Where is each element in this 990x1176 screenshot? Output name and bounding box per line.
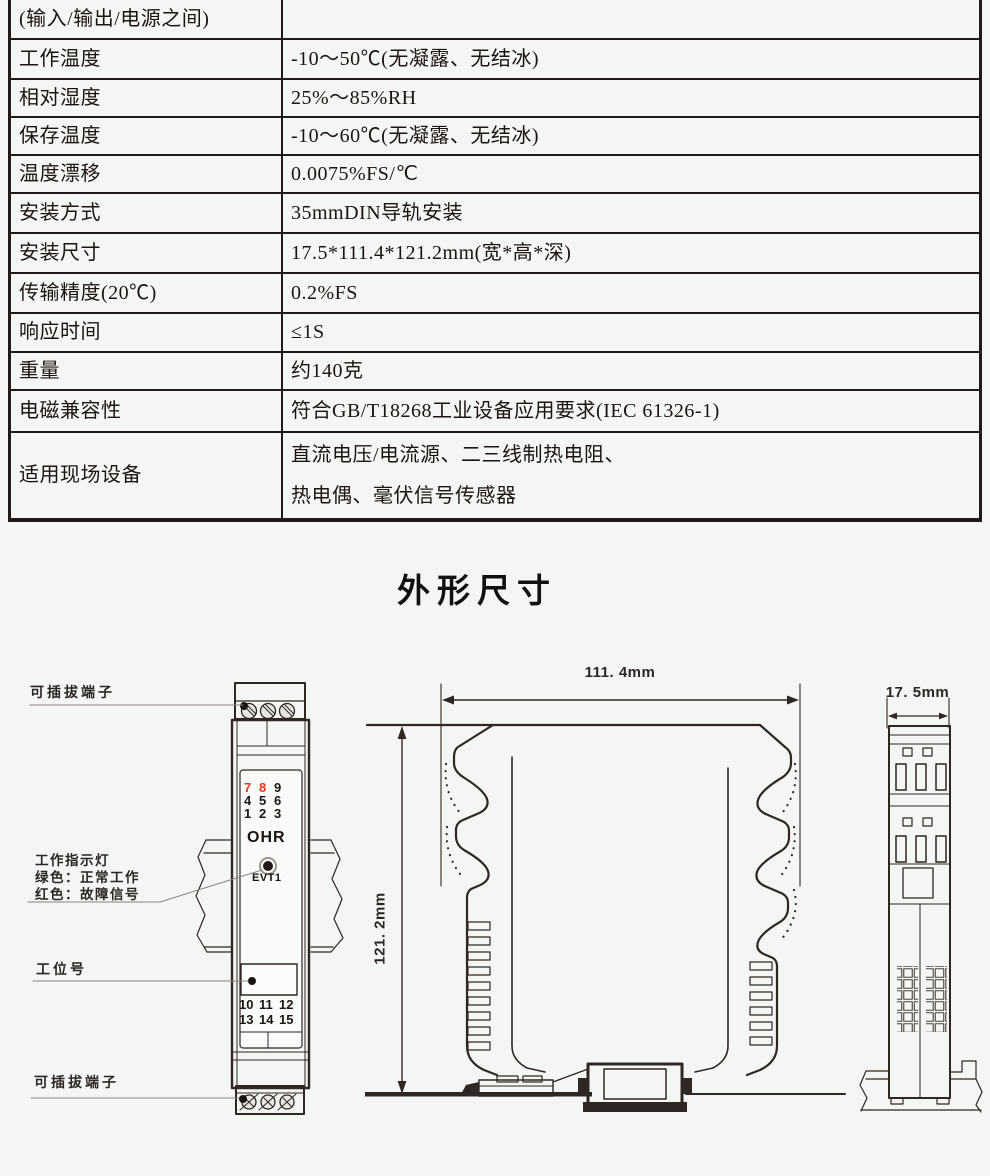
indicator-line-2: 绿色：正常工作 — [35, 869, 140, 886]
terminal-number: 1 — [244, 807, 259, 820]
table-row: 重量 约140克 — [10, 352, 981, 390]
brand-logo: OHR — [247, 829, 286, 847]
terminal-marker-dot-top — [240, 702, 248, 710]
spec-value: ≤1S — [282, 313, 981, 352]
spec-label: 安装尺寸 — [10, 233, 283, 273]
spec-label: (输入/输出/电源之间) — [10, 0, 283, 39]
spec-value: -10～60℃(无凝露、无结冰) — [282, 117, 981, 155]
terminal-number: 15 — [279, 1013, 299, 1028]
dim-width — [441, 684, 800, 886]
terminal-number: 13 — [239, 1013, 259, 1028]
dimension-depth-label: 17. 5mm — [860, 684, 975, 701]
terminal-marker-dot-bottom — [239, 1095, 247, 1103]
indicator-line-1: 工作指示灯 — [35, 852, 140, 869]
table-row: 保存温度 -10～60℃(无凝露、无结冰) — [10, 117, 981, 155]
spec-label: 相对湿度 — [10, 79, 283, 117]
terminal-number: 14 — [259, 1013, 279, 1028]
spec-label: 工作温度 — [10, 39, 283, 79]
spec-label: 重量 — [10, 352, 283, 390]
spec-label: 响应时间 — [10, 313, 283, 352]
indicator-line-3: 红色：故障信号 — [35, 886, 140, 903]
spec-value: -10～50℃(无凝露、无结冰) — [282, 39, 981, 79]
spec-label: 适用现场设备 — [10, 432, 283, 520]
table-row: (输入/输出/电源之间) — [10, 0, 981, 39]
terminal-number: 11 — [259, 998, 279, 1013]
terminal-number-grid-top: 7 8 9 4 5 6 1 2 3 — [244, 781, 289, 820]
table-row: 适用现场设备 直流电压/电流源、二三线制热电阻、 热电偶、毫伏信号传感器 — [10, 432, 981, 520]
table-row: 相对湿度 25%～85%RH — [10, 79, 981, 117]
spec-value: 0.2%FS — [282, 273, 981, 313]
spec-label: 安装方式 — [10, 193, 283, 233]
label-station-number: 工位号 — [36, 959, 87, 979]
spec-label: 保存温度 — [10, 117, 283, 155]
spec-value: 0.0075%FS/℃ — [282, 155, 981, 193]
terminal-number: 3 — [274, 807, 289, 820]
dim-height — [398, 726, 407, 1094]
spec-label: 电磁兼容性 — [10, 390, 283, 432]
table-row: 电磁兼容性 符合GB/T18268工业设备应用要求(IEC 61326-1) — [10, 390, 981, 432]
terminal-number-grid-bottom: 10 11 12 13 14 15 — [239, 998, 299, 1027]
table-row: 安装尺寸 17.5*111.4*121.2mm(宽*高*深) — [10, 233, 981, 273]
spec-value: 直流电压/电流源、二三线制热电阻、 热电偶、毫伏信号传感器 — [282, 432, 981, 520]
table-row: 传输精度(20℃) 0.2%FS — [10, 273, 981, 313]
side-view-group — [365, 684, 845, 1112]
label-work-indicator: 工作指示灯 绿色：正常工作 红色：故障信号 — [35, 852, 140, 903]
terminal-number: 10 — [239, 998, 259, 1013]
spec-value: 符合GB/T18268工业设备应用要求(IEC 61326-1) — [282, 390, 981, 432]
spec-value — [282, 0, 981, 39]
spec-value: 约140克 — [282, 352, 981, 390]
station-marker-dot — [248, 977, 256, 985]
table-row: 温度漂移 0.0075%FS/℃ — [10, 155, 981, 193]
spec-table: (输入/输出/电源之间) 工作温度 -10～50℃(无凝露、无结冰) 相对湿度 … — [8, 0, 982, 522]
spec-value: 17.5*111.4*121.2mm(宽*高*深) — [282, 233, 981, 273]
table-row: 安装方式 35mmDIN导轨安装 — [10, 193, 981, 233]
dimension-width-label: 111. 4mm — [545, 664, 695, 681]
label-pluggable-terminal-top: 可插拔端子 — [30, 682, 115, 702]
din-latch — [578, 1064, 692, 1112]
terminal-number: 2 — [259, 807, 274, 820]
label-pluggable-terminal-bottom: 可插拔端子 — [34, 1072, 119, 1092]
end-view-group — [860, 698, 982, 1112]
spec-value: 25%～85%RH — [282, 79, 981, 117]
spec-label: 温度漂移 — [10, 155, 283, 193]
page-title: 外形尺寸 — [0, 564, 954, 612]
table-row: 响应时间 ≤1S — [10, 313, 981, 352]
table-row: 工作温度 -10～50℃(无凝露、无结冰) — [10, 39, 981, 79]
spec-value: 35mmDIN导轨安装 — [282, 193, 981, 233]
spec-label: 传输精度(20℃) — [10, 273, 283, 313]
outline-drawing-svg — [0, 640, 990, 1176]
led-label: EVT1 — [252, 872, 282, 884]
dimension-height-label: 121. 2mm — [372, 888, 389, 970]
terminal-number: 12 — [279, 998, 299, 1013]
dim-depth — [887, 698, 949, 728]
